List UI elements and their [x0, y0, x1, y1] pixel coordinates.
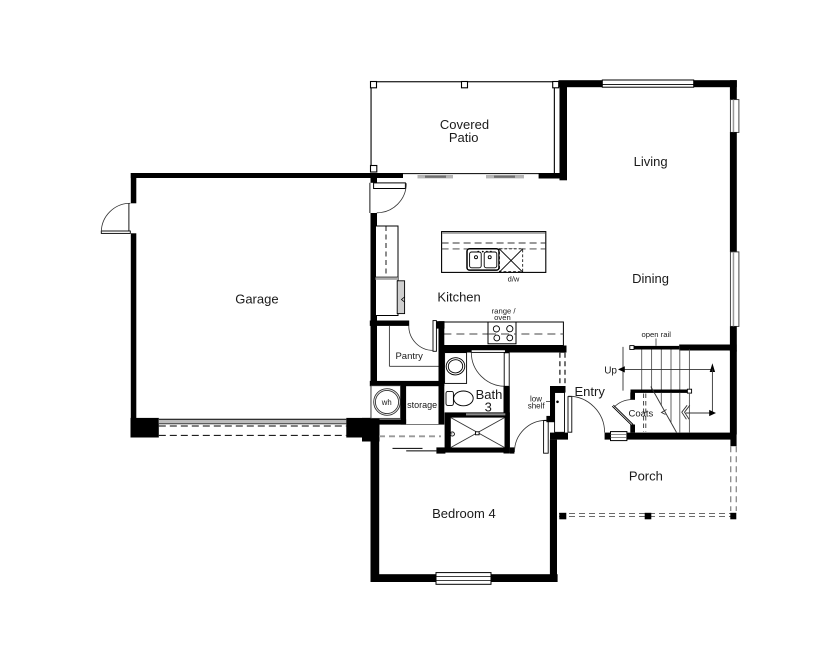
svg-text:Kitchen: Kitchen — [437, 289, 480, 304]
svg-text:Up: Up — [604, 365, 617, 376]
svg-text:Dining: Dining — [632, 271, 669, 286]
svg-text:Pantry: Pantry — [395, 351, 423, 362]
svg-text:Entry: Entry — [575, 384, 606, 399]
svg-text:Bedroom 4: Bedroom 4 — [432, 506, 496, 521]
svg-text:Coats: Coats — [628, 409, 653, 420]
svg-text:Patio: Patio — [449, 130, 479, 145]
svg-text:wh: wh — [381, 398, 392, 407]
svg-text:Porch: Porch — [629, 468, 663, 483]
svg-text:shelf: shelf — [528, 402, 546, 411]
svg-text:Living: Living — [634, 154, 668, 169]
svg-text:oven: oven — [494, 313, 511, 322]
svg-text:3: 3 — [485, 400, 492, 415]
svg-text:open rail: open rail — [641, 330, 671, 339]
svg-text:storage: storage — [407, 400, 437, 410]
svg-text:Garage: Garage — [235, 292, 278, 307]
svg-text:d/w: d/w — [508, 274, 520, 283]
